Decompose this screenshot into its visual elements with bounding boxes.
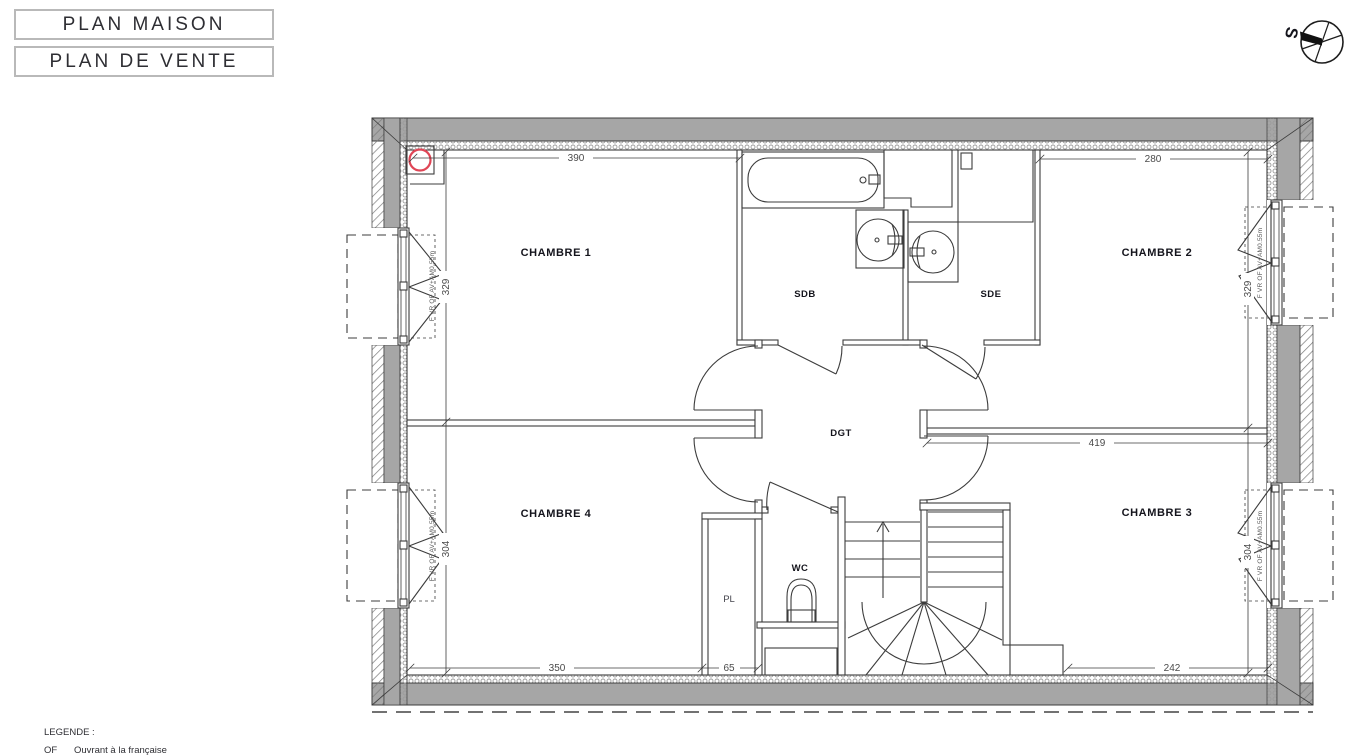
window-chambre2: F VR OF AV+AM0.55m xyxy=(1238,200,1334,325)
sdb-washbasin xyxy=(856,210,904,268)
stairs-up-arrow-icon xyxy=(877,522,889,598)
bathtub xyxy=(742,152,884,208)
legend-item-abbr: OF xyxy=(44,742,74,756)
dim-pl-width: 65 xyxy=(723,663,735,674)
label-sde: SDE xyxy=(980,289,1001,300)
red-circle-symbol xyxy=(406,146,444,184)
label-chambre1: CHAMBRE 1 xyxy=(521,247,592,259)
label-chambre3: CHAMBRE 3 xyxy=(1122,507,1193,519)
floor-plan-drawing: F VR OF AV+AM0.55m F VR OF AV+AM0.55m xyxy=(0,0,1368,756)
dim-chambre2-height: 329 xyxy=(1243,280,1254,297)
door-sdb xyxy=(778,345,842,374)
sde-shower xyxy=(958,150,1033,222)
sdb-shower xyxy=(884,150,952,207)
door-chambre1 xyxy=(694,346,758,410)
label-chambre2: CHAMBRE 2 xyxy=(1122,247,1193,259)
dim-chambre4-width: 350 xyxy=(549,663,566,674)
window-note-chambre1: F VR OF AV+AM0.55m xyxy=(429,251,436,322)
dim-chambre1-height: 329 xyxy=(441,278,452,295)
window-note-chambre4: F VR OF AV+AM0.55m xyxy=(429,511,436,582)
door-wc xyxy=(767,482,838,512)
window-chambre4: F VR OF AV+AM0.55m xyxy=(346,483,443,608)
compass-south-label: S xyxy=(1281,25,1302,40)
interior-walls xyxy=(407,150,1267,675)
staircase xyxy=(845,510,1003,675)
label-dgt: DGT xyxy=(830,428,852,439)
dim-chambre3-width: 419 xyxy=(1089,438,1106,449)
label-sdb: SDB xyxy=(794,289,816,300)
floor-plan-page: PLAN MAISON PLAN DE VENTE xyxy=(0,0,1368,756)
door-chambre4 xyxy=(694,438,758,502)
dim-chambre3-bottom-width: 242 xyxy=(1164,663,1181,674)
compass-icon: S xyxy=(1281,21,1343,63)
legend-item-label: Ouvrant à la française xyxy=(74,745,167,756)
dim-chambre2-width: 280 xyxy=(1145,154,1162,165)
label-chambre4: CHAMBRE 4 xyxy=(521,508,592,520)
window-note-chambre3: F VR OF AV+AM0.55m xyxy=(1257,511,1264,582)
dim-chambre4-height: 304 xyxy=(441,540,452,557)
door-chambre3 xyxy=(924,436,988,500)
door-sde xyxy=(922,345,985,379)
dim-chambre1-width: 390 xyxy=(568,153,585,164)
label-wc: WC xyxy=(792,563,809,574)
legend-item: OFOuvrant à la française xyxy=(44,742,167,756)
dim-chambre3-height: 304 xyxy=(1243,543,1254,560)
sde-washbasin xyxy=(908,222,958,282)
legend: LEGENDE : OFOuvrant à la française xyxy=(44,724,167,756)
label-pl: PL xyxy=(723,594,735,605)
left-wall xyxy=(372,118,407,705)
window-chambre1: F VR OF AV+AM0.55m xyxy=(346,228,443,345)
door-chambre2 xyxy=(924,346,988,410)
legend-heading: LEGENDE : xyxy=(44,724,167,742)
window-note-chambre2: F VR OF AV+AM0.55m xyxy=(1257,228,1264,299)
toilet xyxy=(787,579,816,622)
